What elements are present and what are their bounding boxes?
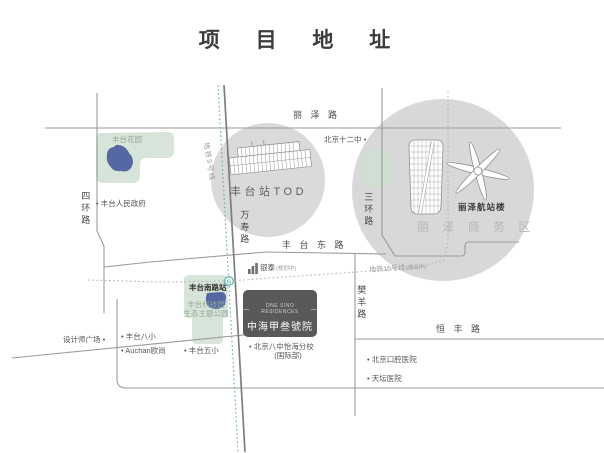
lize-tower-sketch: [409, 140, 443, 214]
area-label-science-park: 丰台科技园 生态主题公园: [180, 300, 232, 319]
road-fengtai-east: [104, 252, 386, 267]
area-label-lize-cbd: 丽 泽 商 务 区: [417, 220, 535, 235]
poi-auchan: • Auchan欧尚: [121, 346, 166, 355]
road-label-lize: 丽 泽 路: [293, 110, 340, 121]
road-label-sanhuan: 三环路: [362, 192, 373, 228]
poi-fengtai-no5-school: • 丰台五小: [184, 346, 219, 355]
poi-yintai: 银泰(规划中): [260, 263, 296, 273]
poi-no8-school-line1: • 北京八中怡海分校: [249, 342, 314, 351]
project-name-en: ONE SINO RESIDENCES: [252, 303, 307, 315]
project-badge: ONE SINO RESIDENCES 中海甲叁號院: [243, 290, 317, 337]
road-label-fanyang: 樊羊路: [355, 285, 366, 321]
poi-yintai-note: (规划中): [276, 266, 296, 272]
poi-no8-school-branch: • 北京八中怡海分校 (国际部): [249, 342, 319, 361]
metro-line16-note: (建设中): [406, 264, 427, 271]
poi-no8-school-line2: (国际部): [257, 351, 319, 360]
project-name-en-row: ONE SINO RESIDENCES: [243, 303, 317, 315]
road-label-fengtai-east: 丰 台 东 路: [282, 240, 347, 251]
badge-rule-left: [243, 309, 249, 310]
poi-yintai-name: 银泰: [260, 263, 275, 272]
yintai-building-icon: [248, 263, 258, 274]
poi-tiantan-hospital: • 天坛医院: [367, 374, 402, 383]
poi-designer-plaza: 设计师广场 •: [63, 335, 105, 344]
science-park-line1: 丰台科技园: [180, 300, 232, 309]
poi-fengtai-government: • 丰台人民政府: [96, 199, 146, 208]
svg-text:G: G: [227, 280, 231, 286]
station-label-fengtainanlu: 丰台南路站: [189, 283, 227, 292]
road-label-wanshou: 万寿路: [238, 210, 249, 246]
project-name-cn: 中海甲叁號院: [243, 318, 317, 333]
road-label-hengfeng: 恒 丰 路: [436, 324, 483, 335]
badge-rule-right: [311, 309, 317, 310]
science-park-line2: 生态主题公园: [180, 309, 232, 318]
road-label-sihuan: 四环路: [79, 191, 90, 227]
area-label-fengtai-garden: 丰台花园: [112, 135, 142, 144]
area-label-lize-terminal: 丽泽航站楼: [458, 202, 506, 213]
tod-highlight-circle: [211, 123, 325, 237]
project-address-map: G 项 目 地 址 丽 泽 路 四环路 三环路 万寿路 樊羊路 丰 台 东 路 …: [0, 0, 604, 453]
poi-fengtai-no8-school: • 丰台八小: [121, 332, 156, 341]
page-title: 项 目 地 址: [0, 24, 604, 54]
poi-stomatology-hospital: • 北京口腔医院: [367, 355, 417, 364]
green-area-mid: [362, 149, 391, 187]
poi-beijing-no12-school: 北京十二中 •: [324, 135, 366, 144]
area-label-tod: 丰台站TOD: [230, 186, 307, 200]
metro-line16-name: 地铁16号线: [369, 265, 405, 274]
